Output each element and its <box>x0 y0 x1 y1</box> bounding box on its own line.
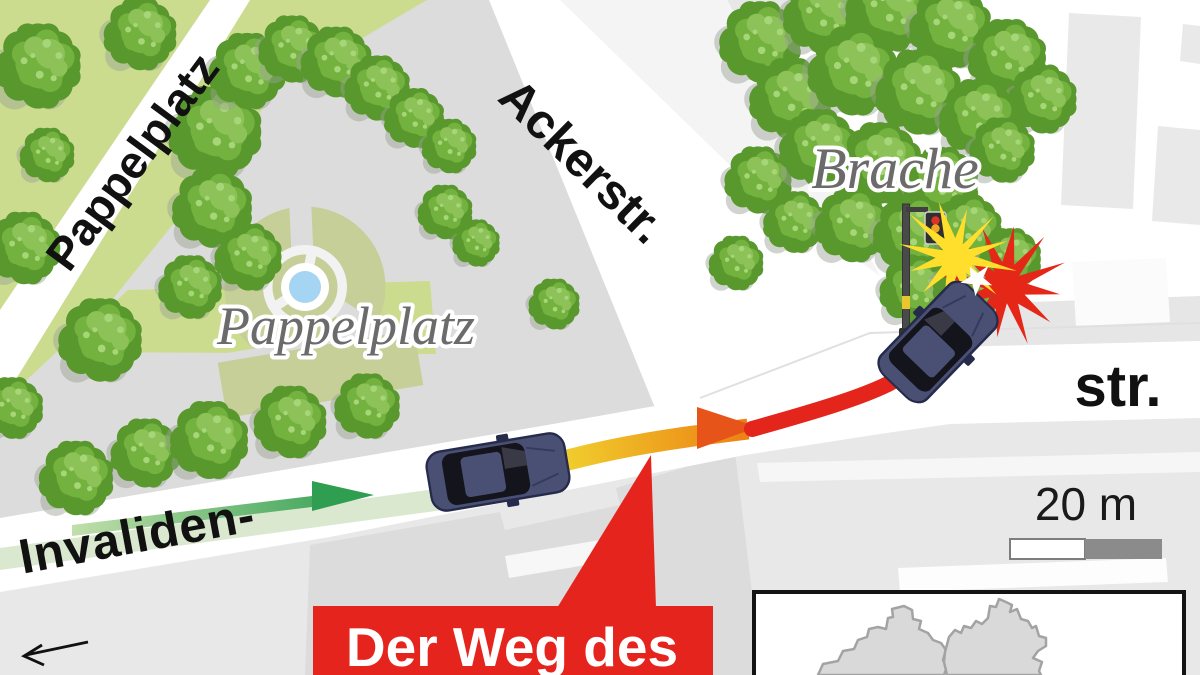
svg-text:Pappelplatz: Pappelplatz <box>216 296 475 356</box>
svg-text:Brache: Brache <box>811 136 979 201</box>
svg-text:str.: str. <box>1074 354 1161 419</box>
svg-text:Der Weg des: Der Weg des <box>346 616 678 675</box>
svg-text:20 m: 20 m <box>1035 478 1137 530</box>
